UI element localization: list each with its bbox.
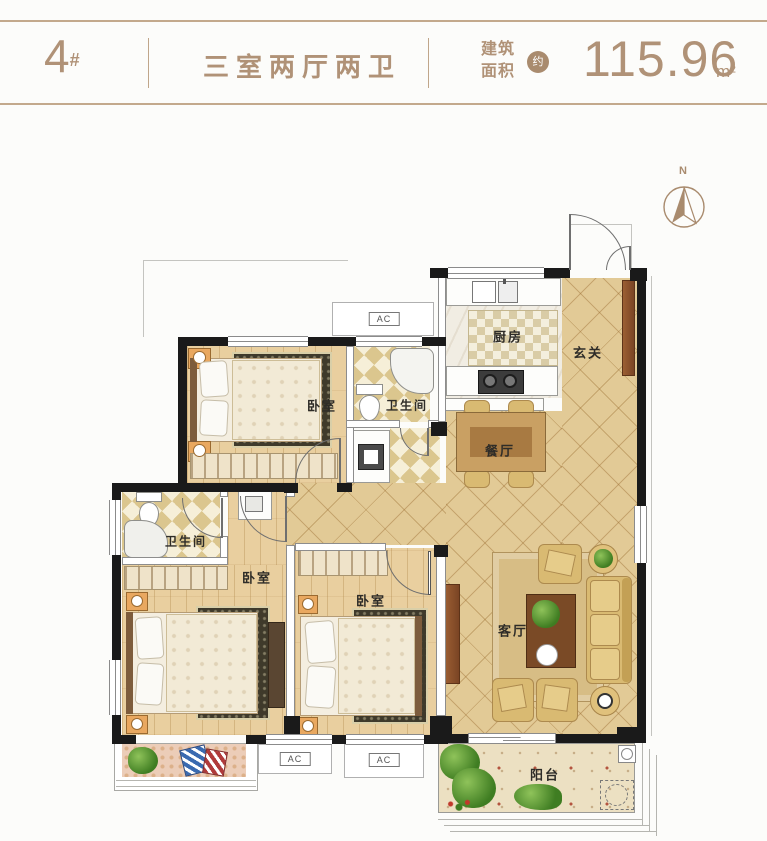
reserved-appliance-circle xyxy=(605,784,628,806)
partition-wall xyxy=(346,346,354,483)
partition-wall xyxy=(295,543,386,551)
flowers-icon xyxy=(438,796,480,812)
outline-line xyxy=(438,819,643,820)
pillow xyxy=(304,620,337,664)
area-label: 建筑 面积 xyxy=(481,39,515,83)
bedroom-middle-wardrobe xyxy=(298,550,388,576)
outline-line xyxy=(450,831,657,832)
lamp-icon xyxy=(131,718,143,730)
wall-segment xyxy=(178,337,187,492)
cushion-red xyxy=(202,748,228,776)
wall-segment xyxy=(112,483,187,492)
wall-segment xyxy=(112,483,121,500)
sofa-back xyxy=(622,578,631,682)
outline-line xyxy=(444,825,650,826)
ac-label-top: AC xyxy=(369,312,400,326)
pillow xyxy=(135,662,165,706)
wall-pillar xyxy=(284,716,300,736)
burner-icon xyxy=(503,374,517,388)
room-label-bedroom-top: 卧室 xyxy=(307,396,337,415)
outline-line xyxy=(649,749,650,831)
wall-segment xyxy=(430,268,448,278)
wall-segment xyxy=(637,563,646,735)
area-unit: m² xyxy=(716,62,736,82)
toilet-tank xyxy=(136,492,162,502)
sink-basin xyxy=(364,450,378,464)
entry-door-leaf xyxy=(569,214,571,270)
outline-line xyxy=(651,276,652,736)
sofa-cushion xyxy=(590,580,620,612)
wall-pillar xyxy=(434,545,448,557)
lamp-icon xyxy=(302,598,314,610)
area-label-line1: 建筑 xyxy=(481,39,515,61)
header-top-rule xyxy=(0,20,767,22)
approx-badge: 约 xyxy=(527,51,549,73)
plant-icon xyxy=(594,549,613,568)
outline-line xyxy=(116,780,256,781)
area-value: 115.96 xyxy=(583,34,738,84)
header-divider-1 xyxy=(148,38,149,88)
wall-segment xyxy=(112,735,136,744)
room-label-bedroom-middle: 卧室 xyxy=(356,591,386,610)
window xyxy=(266,734,332,745)
bedroom-left-wardrobe xyxy=(124,566,228,590)
entry-door-leaf xyxy=(629,246,631,270)
pillow xyxy=(135,616,165,660)
outline-line xyxy=(631,224,632,270)
room-label-dining: 餐厅 xyxy=(485,441,515,460)
room-label-balcony: 阳台 xyxy=(530,765,560,784)
partition-wall xyxy=(438,276,446,422)
area-label-line2: 面积 xyxy=(481,61,515,83)
room-label-entry: 玄关 xyxy=(573,343,603,362)
wall-pillar xyxy=(284,483,298,493)
bed-duvet xyxy=(338,618,415,714)
wall-segment xyxy=(186,483,295,492)
armchair-cushion xyxy=(497,684,527,712)
compass-north-label: N xyxy=(679,165,687,177)
pillow xyxy=(199,360,229,398)
entry-shoe-cabinet xyxy=(622,280,635,376)
window xyxy=(346,734,424,745)
door-leaf xyxy=(427,428,429,456)
room-label-kitchen: 厨房 xyxy=(493,327,523,346)
wall-segment xyxy=(430,734,468,743)
bed-headboard xyxy=(415,616,422,716)
kitchen-sink-right xyxy=(498,281,518,303)
window xyxy=(109,500,121,555)
lamp-icon xyxy=(302,720,314,732)
window xyxy=(634,506,647,563)
partition-wall xyxy=(286,545,295,735)
building-number: 4# xyxy=(44,33,80,79)
pillow xyxy=(199,399,229,436)
outline-line xyxy=(642,743,643,825)
plant-icon xyxy=(128,747,158,774)
sliding-door xyxy=(468,733,556,744)
burner-icon xyxy=(483,374,497,388)
wall-segment xyxy=(112,555,121,660)
tv-cabinet xyxy=(444,584,460,684)
outline-line xyxy=(656,755,657,836)
compass: N xyxy=(655,165,715,235)
lamp-icon xyxy=(131,595,143,607)
dining-chair xyxy=(464,470,490,488)
wall-segment xyxy=(332,735,346,744)
partition-wall xyxy=(346,420,400,428)
toilet-tank xyxy=(356,384,383,395)
outline-line xyxy=(143,260,348,261)
balcony-fixture-detail xyxy=(621,748,633,760)
kitchen-sink-left xyxy=(472,281,496,303)
wall-segment xyxy=(544,268,570,278)
bed-headboard xyxy=(126,612,133,714)
bed-duvet xyxy=(166,614,257,712)
wall-pillar xyxy=(431,422,447,436)
sofa-cushion xyxy=(590,648,620,680)
outline-line xyxy=(143,260,144,337)
outline-line xyxy=(116,786,256,787)
corridor-floor xyxy=(286,483,446,545)
sofa-cushion xyxy=(590,614,620,646)
wall-segment xyxy=(637,276,646,506)
decor-icon xyxy=(597,693,613,709)
door-leaf xyxy=(221,498,223,538)
header-bottom-rule xyxy=(0,103,767,105)
lamp-icon xyxy=(193,444,206,457)
window xyxy=(448,267,544,279)
building-number-suffix: # xyxy=(70,50,80,70)
wall-segment xyxy=(617,727,646,736)
plant-icon xyxy=(514,784,562,810)
dining-chair xyxy=(508,470,534,488)
window xyxy=(356,336,422,347)
building-number-value: 4 xyxy=(44,30,70,82)
wall-segment xyxy=(246,735,266,744)
ac-label-bottom-right: AC xyxy=(369,753,400,767)
layout-type-label: 三室两厅两卫 xyxy=(203,47,401,84)
room-label-bedroom-left: 卧室 xyxy=(242,568,272,587)
header-divider-2 xyxy=(428,38,429,88)
floorplan-page: { "header": { "building_number": "4", "b… xyxy=(0,0,767,841)
partition-wall xyxy=(122,557,228,565)
partition-wall xyxy=(436,548,446,716)
room-label-living: 客厅 xyxy=(498,621,528,640)
ac-label-bottom-left: AC xyxy=(280,752,311,766)
window xyxy=(109,660,121,715)
wall-pillar xyxy=(430,716,452,735)
room-label-bathroom-top: 卫生间 xyxy=(386,397,428,414)
compass-icon xyxy=(655,179,715,235)
tray-icon xyxy=(536,644,558,666)
armchair-cushion xyxy=(541,684,570,711)
door-leaf xyxy=(285,496,287,542)
door-leaf xyxy=(339,438,341,483)
bed-headboard xyxy=(190,358,197,442)
wall-segment xyxy=(337,483,352,492)
room-label-bathroom-left: 卫生间 xyxy=(165,533,207,550)
pillow xyxy=(305,665,337,709)
door-leaf xyxy=(428,551,431,595)
plant-icon xyxy=(532,600,560,628)
window xyxy=(228,336,308,347)
tv-cabinet xyxy=(268,622,285,708)
